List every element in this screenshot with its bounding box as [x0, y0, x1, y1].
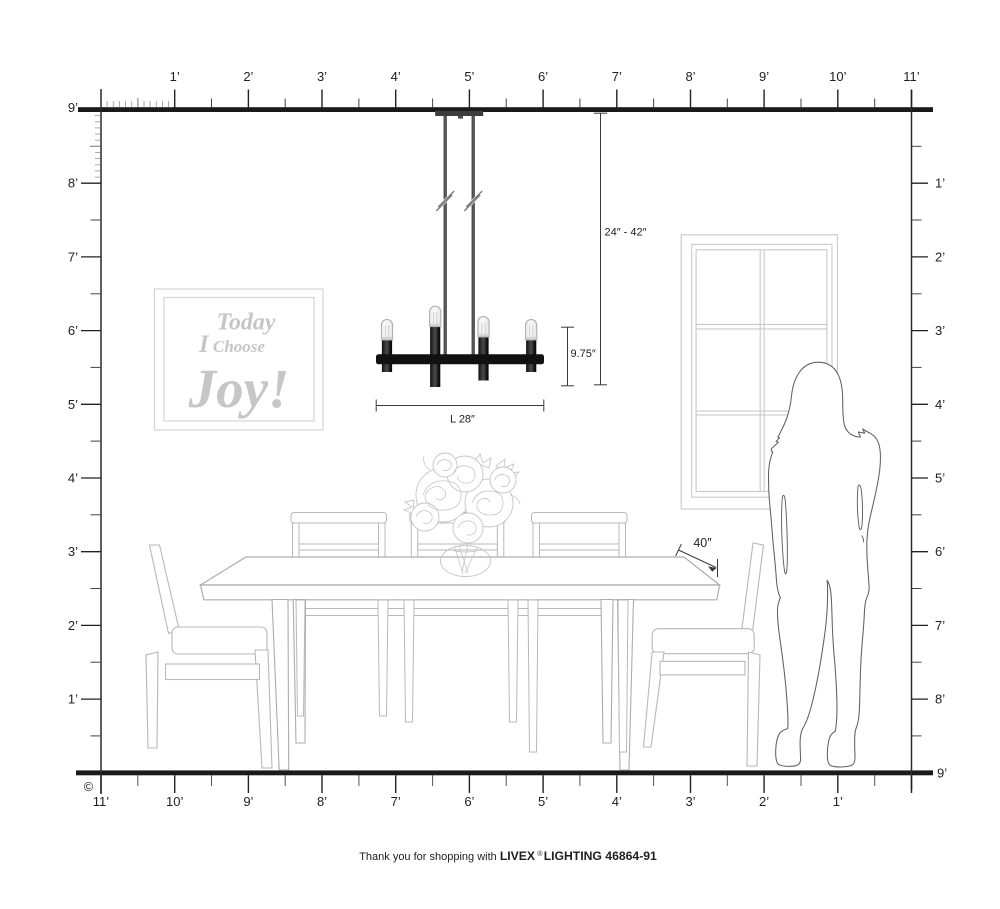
svg-text:3’: 3’: [68, 544, 78, 559]
svg-text:4’: 4’: [68, 471, 78, 486]
svg-text:8’: 8’: [317, 794, 327, 809]
svg-text:9.75″: 9.75″: [571, 348, 596, 360]
svg-text:8’: 8’: [685, 69, 695, 84]
svg-text:3’: 3’: [317, 69, 327, 84]
svg-text:8’: 8’: [935, 692, 945, 707]
svg-text:Thank you for shopping with LI: Thank you for shopping with LIVEX ® LIGH…: [359, 849, 657, 863]
svg-text:6’: 6’: [68, 323, 78, 338]
svg-text:10’: 10’: [829, 69, 846, 84]
svg-text:1’: 1’: [68, 692, 78, 707]
svg-text:8’: 8’: [68, 176, 78, 191]
svg-text:1’: 1’: [935, 176, 945, 191]
svg-text:3’: 3’: [685, 794, 695, 809]
svg-text:©: ©: [84, 780, 94, 794]
svg-text:2’: 2’: [243, 69, 253, 84]
svg-text:7’: 7’: [612, 69, 622, 84]
svg-text:5’: 5’: [464, 69, 474, 84]
svg-text:1’: 1’: [833, 794, 843, 809]
svg-text:7’: 7’: [391, 794, 401, 809]
svg-text:5’: 5’: [538, 794, 548, 809]
svg-text:4’: 4’: [612, 794, 622, 809]
svg-text:9’: 9’: [243, 794, 253, 809]
svg-text:7’: 7’: [68, 249, 78, 264]
svg-text:9’: 9’: [937, 766, 947, 781]
svg-text:10’: 10’: [166, 794, 183, 809]
svg-text:24″ - 42″: 24″ - 42″: [605, 227, 647, 239]
svg-text:11’: 11’: [93, 794, 109, 809]
svg-text:5’: 5’: [935, 471, 945, 486]
svg-text:Today: Today: [216, 310, 275, 336]
svg-text:4’: 4’: [935, 397, 945, 412]
svg-text:Joy!: Joy!: [188, 358, 290, 419]
svg-text:4’: 4’: [391, 69, 401, 84]
svg-text:1’: 1’: [170, 69, 180, 84]
svg-text:9’: 9’: [759, 69, 769, 84]
svg-text:7’: 7’: [935, 618, 945, 633]
svg-text:5’: 5’: [68, 397, 78, 412]
svg-text:2’: 2’: [759, 794, 769, 809]
svg-text:11’: 11’: [903, 69, 919, 84]
svg-text:40″: 40″: [693, 536, 712, 550]
svg-text:6’: 6’: [538, 69, 548, 84]
svg-text:2’: 2’: [68, 618, 78, 633]
svg-text:6’: 6’: [464, 794, 474, 809]
svg-text:9’: 9’: [68, 100, 78, 115]
svg-text:3’: 3’: [935, 323, 945, 338]
svg-text:2’: 2’: [935, 249, 945, 264]
svg-text:6’: 6’: [935, 544, 945, 559]
svg-text:L 28″: L 28″: [450, 414, 475, 426]
